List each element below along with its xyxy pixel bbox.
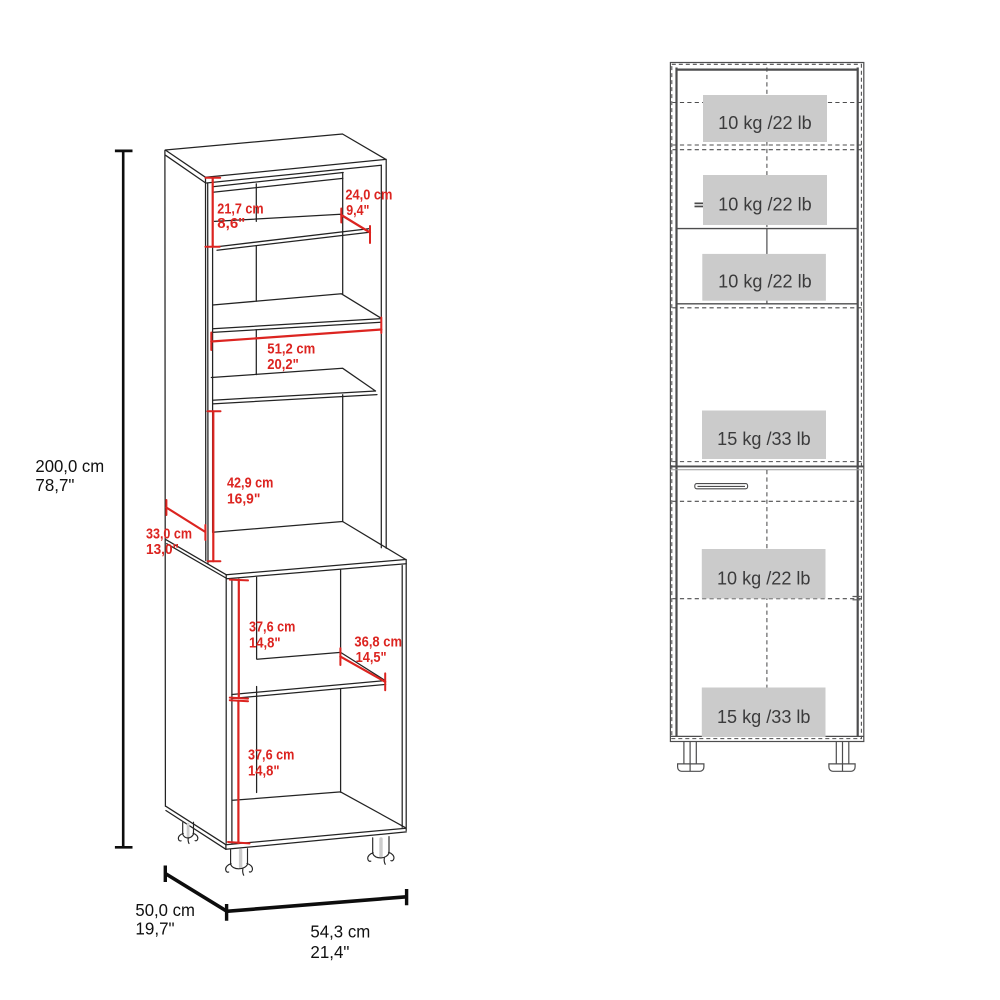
svg-text:10 kg /22 lb: 10 kg /22 lb (718, 113, 812, 133)
svg-text:13,0": 13,0" (146, 542, 179, 558)
svg-text:9,4": 9,4" (346, 203, 369, 219)
svg-text:8,6": 8,6" (217, 216, 245, 232)
svg-text:10 kg /22 lb: 10 kg /22 lb (718, 195, 812, 215)
svg-text:21,4": 21,4" (310, 942, 349, 962)
svg-text:16,9": 16,9" (227, 491, 260, 507)
svg-text:14,5": 14,5" (356, 650, 387, 666)
svg-text:37,6 cm: 37,6 cm (248, 747, 294, 763)
svg-text:10 kg /22 lb: 10 kg /22 lb (717, 568, 811, 588)
svg-text:15 kg /33 lb: 15 kg /33 lb (717, 707, 811, 727)
svg-text:24,0 cm: 24,0 cm (345, 188, 392, 204)
svg-text:20,2": 20,2" (267, 357, 299, 373)
svg-text:200,0 cm: 200,0 cm (35, 456, 104, 476)
svg-text:33,0 cm: 33,0 cm (146, 527, 192, 543)
svg-text:19,7": 19,7" (135, 919, 174, 939)
svg-text:50,0 cm: 50,0 cm (135, 900, 195, 920)
svg-text:78,7": 78,7" (35, 475, 74, 495)
svg-text:54,3 cm: 54,3 cm (310, 921, 370, 941)
svg-text:14,8": 14,8" (249, 635, 281, 651)
svg-text:42,9 cm: 42,9 cm (227, 475, 273, 491)
svg-text:21,7 cm: 21,7 cm (217, 201, 263, 217)
svg-text:36,8 cm: 36,8 cm (354, 634, 402, 650)
svg-text:15 kg /33 lb: 15 kg /33 lb (717, 429, 811, 449)
svg-text:51,2 cm: 51,2 cm (267, 342, 315, 358)
svg-text:37,6 cm: 37,6 cm (249, 620, 295, 636)
svg-text:14,8": 14,8" (248, 763, 280, 779)
svg-text:10 kg /22 lb: 10 kg /22 lb (718, 272, 812, 292)
